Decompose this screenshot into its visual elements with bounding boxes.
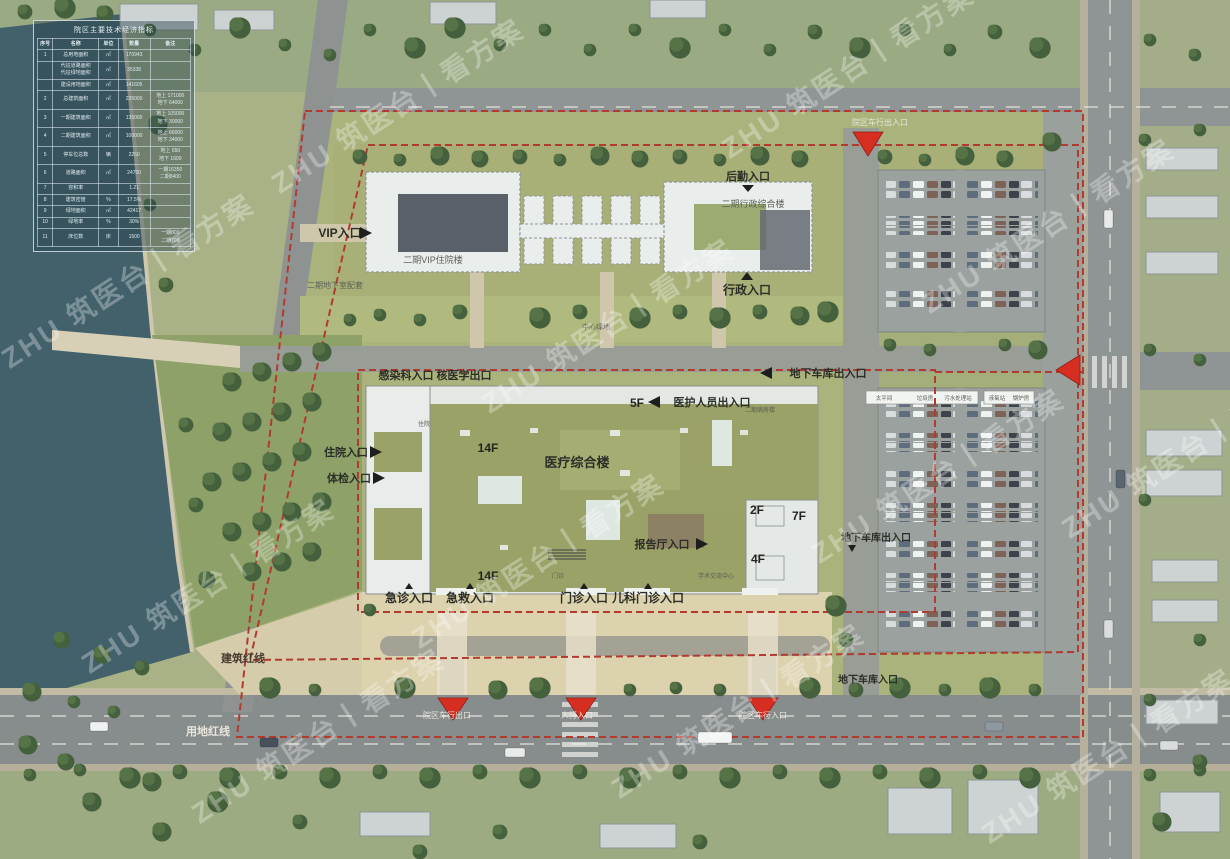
central-green-label: 中心绿地: [582, 322, 610, 331]
indicator-table-grid: 序号 名称 单位 数量 备注 1总用地面积㎡170943 代征道路面积 代征绿地…: [37, 38, 191, 247]
campus-entrance-label: 院区车行入口: [739, 710, 787, 720]
table-row: 9绿地面积㎡42417: [38, 206, 191, 217]
table-row: 1总用地面积㎡170943: [38, 50, 191, 61]
floor-4f: 4F: [751, 552, 765, 566]
infection-entrance-label: 感染科入口 核医学出口: [378, 368, 491, 382]
vip-entrance-label: VIP入口: [318, 226, 361, 240]
table-row: 2总建筑面积㎡235000地上 171000 地下 64000: [38, 91, 191, 110]
street-gate-label: 院区车行出入口: [852, 117, 908, 127]
inpatient-small-label: 住院: [418, 420, 430, 428]
parking-aisle: [955, 170, 965, 332]
outpatient-entrance-label: 门诊入口: [560, 590, 608, 605]
table-row: 4二期建筑面积㎡100000地上 66000 地下 34000: [38, 128, 191, 147]
oxygen-label: 液氧站: [989, 394, 1006, 402]
emergency-entrance-label: 急诊入口: [385, 590, 433, 605]
morgue-label: 太平间: [876, 394, 893, 402]
pedestrian-entrance-label: 人行入口: [561, 710, 593, 720]
phase2-ward-label: 二期病房楼: [745, 406, 775, 414]
floor-7f: 7F: [792, 509, 806, 523]
header-note: 备注: [150, 39, 190, 50]
table-row: 11床位数床1500一期800 二期700: [38, 228, 191, 247]
boiler-label: 锅炉房: [1013, 394, 1030, 402]
staff-entrance-label: 医护人员出入口: [674, 395, 751, 409]
admin-building-label: 二期行政综合楼: [721, 198, 784, 209]
inpatient-entrance-label: 住院入口: [324, 445, 368, 459]
header-no: 序号: [38, 39, 53, 50]
indicator-table: 院区主要技术经济指标 序号 名称 单位 数量 备注 1总用地面积㎡170943 …: [33, 20, 195, 252]
table-row: 10绿地率%30%: [38, 217, 191, 228]
vip-building-label: 二期VIP住院楼: [403, 254, 463, 265]
table-title: 院区主要技术经济指标: [37, 25, 191, 35]
outpatient-small-label: 门诊: [552, 572, 564, 580]
floor-14f-south: 14F: [478, 569, 499, 583]
table-row: 3一期建筑面积㎡135000地上 105000 地下 30000: [38, 109, 191, 128]
header-name: 名称: [53, 39, 99, 50]
ward-wings-building: [520, 196, 664, 264]
table-row: 建设用地面积㎡141605: [38, 80, 191, 91]
garage-exit-east-label: 地下车库出入口: [790, 366, 867, 380]
sewage-label: 污水处理站: [944, 394, 972, 402]
garage-exit-mid-label: 地下车库出入口: [841, 531, 911, 544]
parking-aisle: [955, 388, 965, 652]
checkup-entrance-label: 体检入口: [327, 471, 371, 485]
garage-entrance-south-label: 地下车库入口: [838, 673, 898, 686]
floor-5f: 5F: [630, 396, 644, 410]
header-qty: 数量: [118, 39, 150, 50]
admin-entrance-label: 行政入口: [722, 282, 771, 297]
table-row: 6道路面积㎡24750一期16350 二期8400: [38, 165, 191, 184]
admin-building: [664, 182, 812, 272]
building-redline-label: 建筑红线: [221, 651, 265, 665]
table-row: 8建筑密度%17.5%: [38, 195, 191, 206]
site-plan: VIP入口 住院入口 体检入口 二期地下室配套 二期VIP住院楼 二期行政综合楼…: [0, 0, 1230, 859]
pediatric-entrance-label: 儿科门诊入口: [611, 590, 684, 605]
table-row: 5停车位总数辆2250地上 650 地下 1600: [38, 146, 191, 165]
phase2-basement-label: 二期地下室配套: [307, 280, 363, 290]
campus-exit-label: 院区车行出口: [423, 710, 471, 720]
garbage-label: 垃圾房: [917, 394, 934, 402]
land-redline-label: 用地红线: [186, 724, 230, 738]
medical-complex-label: 医疗综合楼: [544, 455, 609, 470]
table-header-row: 序号 名称 单位 数量 备注: [38, 39, 191, 50]
crosswalk: [1088, 356, 1132, 388]
firstaid-entrance-label: 急救入口: [446, 590, 494, 605]
floor-2f: 2F: [750, 503, 764, 517]
academic-center-label: 学术交流中心: [698, 572, 734, 580]
floor-14f-mid: 14F: [478, 441, 499, 455]
lecture-entrance-label: 报告厅入口: [635, 537, 690, 551]
header-unit: 单位: [99, 39, 118, 50]
logistics-entrance-label: 后勤入口: [726, 169, 770, 183]
table-row: 7容积率1.21: [38, 183, 191, 194]
table-row: 代征道路面积 代征绿地面积㎡35338: [38, 61, 191, 80]
